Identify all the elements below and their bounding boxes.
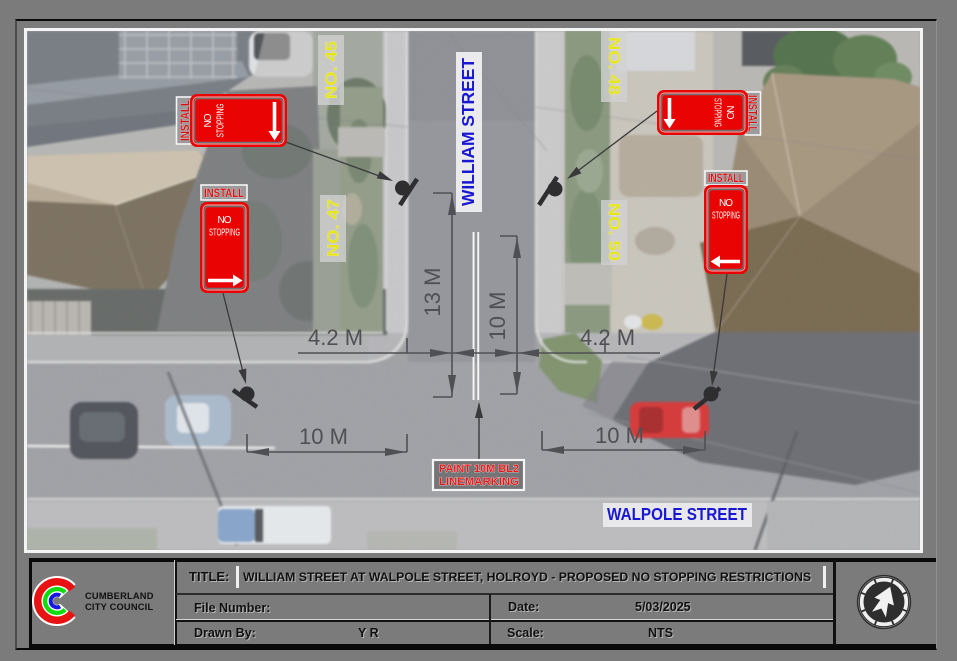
svg-text:NO. 45: NO. 45 [324,41,341,99]
svg-text:4.2 M: 4.2 M [580,325,635,350]
svg-text:NO: NO [719,198,733,209]
svg-text:10 M: 10 M [299,424,348,449]
svg-text:NO. 47: NO. 47 [326,199,343,257]
svg-text:4.2 M: 4.2 M [308,325,363,350]
svg-text:CUMBERLAND: CUMBERLAND [85,591,154,601]
svg-text:INSTALL: INSTALL [204,186,244,200]
svg-text:WALPOLE STREET: WALPOLE STREET [607,504,747,524]
svg-text:LINEMARKING: LINEMARKING [439,476,519,488]
svg-text:STOPPING: STOPPING [712,98,723,127]
svg-text:STOPPING: STOPPING [216,103,227,137]
svg-text:NO. 48: NO. 48 [605,37,622,95]
svg-text:STOPPING: STOPPING [209,228,240,239]
svg-text:10 M: 10 M [485,292,510,341]
svg-text:NO: NO [218,215,232,226]
svg-text:NO. 50: NO. 50 [605,203,622,261]
svg-text:WILLIAM STREET: WILLIAM STREET [458,58,478,206]
svg-text:13 M: 13 M [420,268,445,317]
svg-text:10 M: 10 M [595,423,644,448]
svg-text:INSTALL: INSTALL [178,100,192,141]
svg-text:PAINT 10M BL2: PAINT 10M BL2 [439,463,519,475]
svg-text:STOPPING: STOPPING [712,211,740,222]
svg-text:CITY COUNCIL: CITY COUNCIL [85,602,153,612]
svg-text:NO: NO [724,106,735,120]
svg-text:NO: NO [203,113,214,127]
svg-text:INSTALL: INSTALL [708,171,744,185]
